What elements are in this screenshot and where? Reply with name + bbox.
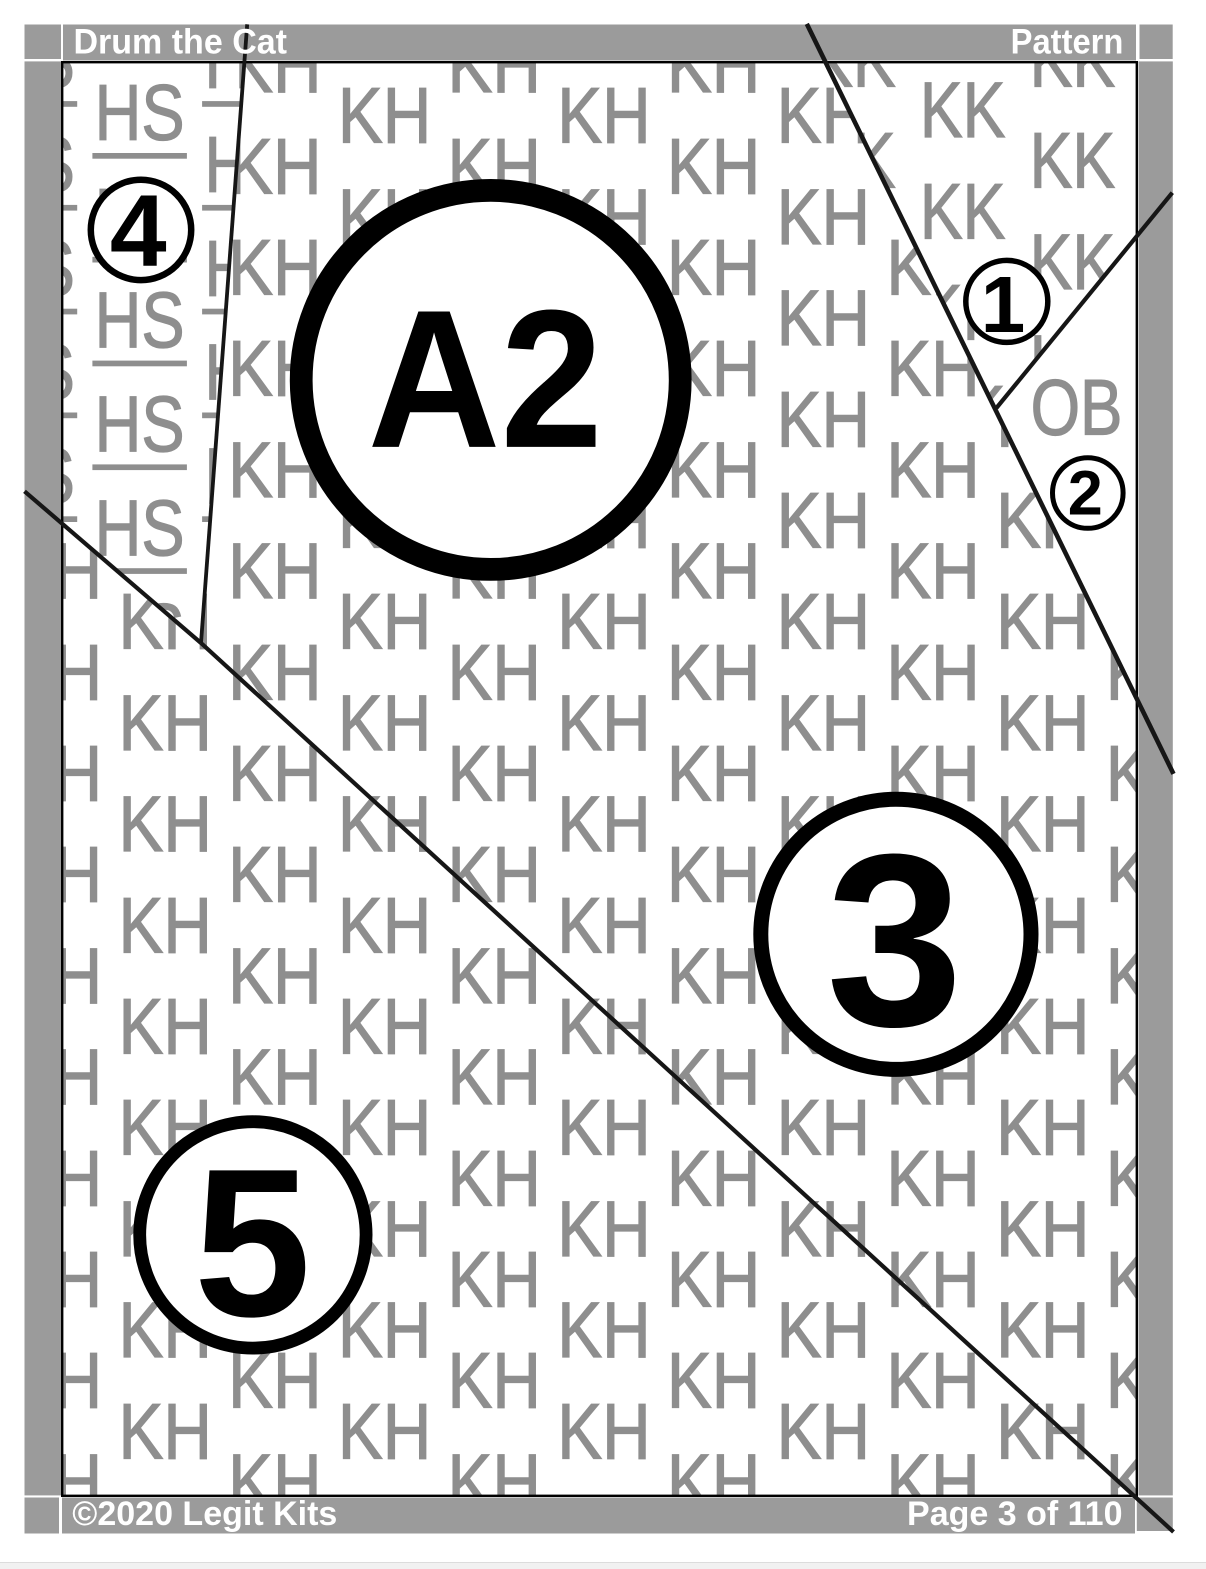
svg-text:1: 1 xyxy=(981,260,1026,349)
svg-text:KH: KH xyxy=(557,1287,650,1374)
svg-text:KH: KH xyxy=(557,781,650,868)
svg-text:KH: KH xyxy=(557,984,650,1071)
svg-text:KH: KH xyxy=(557,680,650,767)
svg-text:KH: KH xyxy=(338,882,431,969)
svg-text:KH: KH xyxy=(667,123,760,210)
svg-text:KH: KH xyxy=(338,781,431,868)
svg-text:KH: KH xyxy=(118,882,211,969)
svg-text:KH: KH xyxy=(667,1237,760,1324)
svg-text:Page 3 of 110: Page 3 of 110 xyxy=(907,1495,1122,1533)
svg-text:KH: KH xyxy=(118,1388,211,1475)
svg-text:KH: KH xyxy=(557,882,650,969)
svg-text:KH: KH xyxy=(667,528,760,615)
svg-text:KK: KK xyxy=(1030,118,1115,206)
svg-text:KH: KH xyxy=(448,629,541,716)
svg-text:KH: KH xyxy=(996,1287,1089,1374)
svg-text:KH: KH xyxy=(338,1388,431,1475)
svg-text:KH: KH xyxy=(448,1237,541,1324)
svg-text:KH: KH xyxy=(557,73,650,160)
svg-text:KK: KK xyxy=(920,67,1005,155)
svg-text:HS: HS xyxy=(95,70,185,157)
svg-text:KH: KH xyxy=(338,579,431,666)
svg-text:4: 4 xyxy=(110,174,167,288)
svg-text:KH: KH xyxy=(557,1085,650,1172)
svg-text:KH: KH xyxy=(667,731,760,818)
svg-text:KH: KH xyxy=(777,680,870,767)
svg-text:KH: KH xyxy=(667,832,760,919)
svg-text:KH: KH xyxy=(886,629,979,716)
svg-text:KH: KH xyxy=(448,1034,541,1121)
svg-text:KH: KH xyxy=(338,680,431,767)
svg-text:Pattern: Pattern xyxy=(1011,23,1124,62)
svg-text:KH: KH xyxy=(777,376,870,463)
svg-text:KH: KH xyxy=(228,528,321,615)
svg-text:KH: KH xyxy=(557,1186,650,1273)
svg-text:KH: KH xyxy=(996,579,1089,666)
svg-text:5: 5 xyxy=(194,1125,311,1361)
svg-text:KH: KH xyxy=(338,984,431,1071)
svg-text:KH: KH xyxy=(886,528,979,615)
svg-text:KH: KH xyxy=(886,427,979,514)
svg-text:KH: KH xyxy=(448,731,541,818)
svg-text:KH: KH xyxy=(228,731,321,818)
svg-text:KH: KH xyxy=(886,1338,979,1425)
svg-text:KH: KH xyxy=(777,1186,870,1273)
svg-text:2: 2 xyxy=(1068,459,1103,529)
svg-text:KH: KH xyxy=(777,1287,870,1374)
svg-text:KH: KH xyxy=(338,1085,431,1172)
svg-text:Drum the Cat: Drum the Cat xyxy=(73,23,287,62)
svg-text:KH: KH xyxy=(448,1135,541,1222)
svg-text:KK: KK xyxy=(920,168,1005,256)
svg-text:KH: KH xyxy=(996,1186,1089,1273)
svg-text:KH: KH xyxy=(777,174,870,261)
svg-text:KH: KH xyxy=(996,1388,1089,1475)
svg-text:KH: KH xyxy=(667,1034,760,1121)
svg-text:KH: KH xyxy=(777,579,870,666)
svg-text:KH: KH xyxy=(996,1085,1089,1172)
svg-text:A2: A2 xyxy=(368,270,603,489)
svg-text:KH: KH xyxy=(667,1338,760,1425)
svg-text:KH: KH xyxy=(667,225,760,312)
svg-text:KH: KH xyxy=(228,123,321,210)
svg-text:KH: KH xyxy=(667,629,760,716)
svg-text:KH: KH xyxy=(448,933,541,1020)
svg-text:KH: KH xyxy=(777,478,870,565)
svg-text:KH: KH xyxy=(228,832,321,919)
svg-text:HS: HS xyxy=(95,485,185,572)
svg-text:HS: HS xyxy=(95,277,185,364)
svg-text:KH: KH xyxy=(228,933,321,1020)
svg-text:KH: KH xyxy=(777,1388,870,1475)
svg-text:OB: OB xyxy=(1031,364,1123,452)
svg-text:©2020 Legit Kits: ©2020 Legit Kits xyxy=(72,1495,337,1533)
svg-text:KH: KH xyxy=(667,933,760,1020)
svg-text:KH: KH xyxy=(557,1388,650,1475)
svg-text:KH: KH xyxy=(228,629,321,716)
svg-text:KH: KH xyxy=(448,1338,541,1425)
svg-text:HS: HS xyxy=(95,381,185,468)
svg-text:KH: KH xyxy=(777,1085,870,1172)
svg-text:KH: KH xyxy=(448,832,541,919)
svg-text:KH: KH xyxy=(886,1135,979,1222)
svg-text:KH: KH xyxy=(338,73,431,160)
svg-text:KH: KH xyxy=(228,1034,321,1121)
svg-text:KH: KH xyxy=(777,275,870,362)
svg-text:KH: KH xyxy=(557,579,650,666)
svg-text:3: 3 xyxy=(826,803,963,1078)
svg-text:KH: KH xyxy=(996,680,1089,767)
svg-text:KH: KH xyxy=(667,1135,760,1222)
svg-text:KH: KH xyxy=(118,680,211,767)
svg-text:KH: KH xyxy=(118,984,211,1071)
svg-text:KH: KH xyxy=(118,781,211,868)
